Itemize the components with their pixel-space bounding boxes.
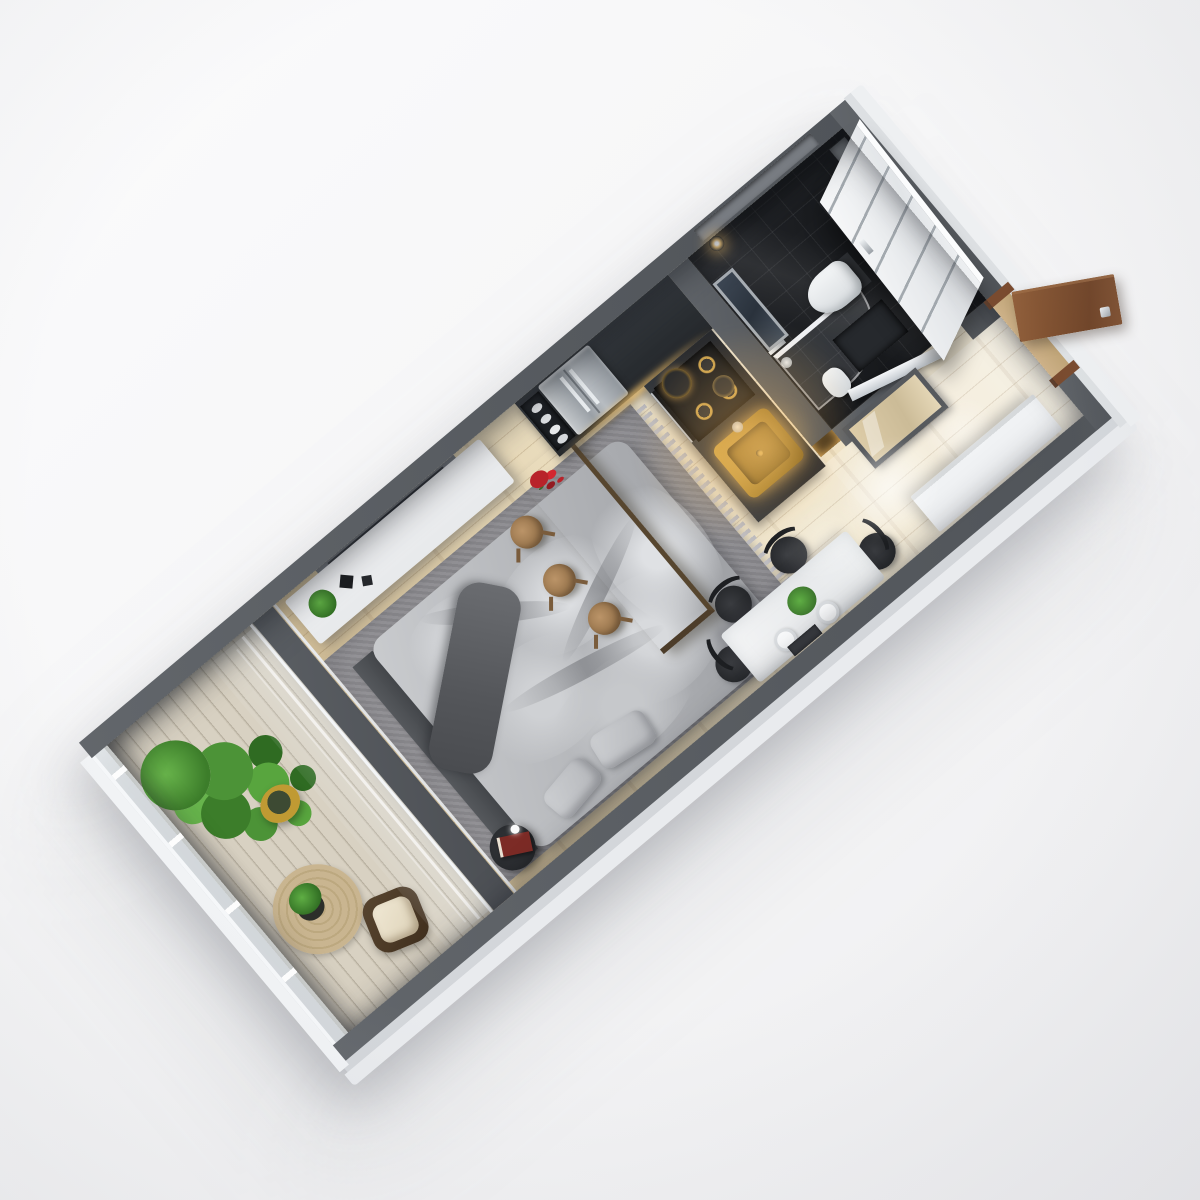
black-vase	[361, 575, 373, 587]
entry-door-handle	[1099, 306, 1111, 318]
scene	[0, 0, 1200, 1200]
black-vase	[339, 575, 353, 589]
